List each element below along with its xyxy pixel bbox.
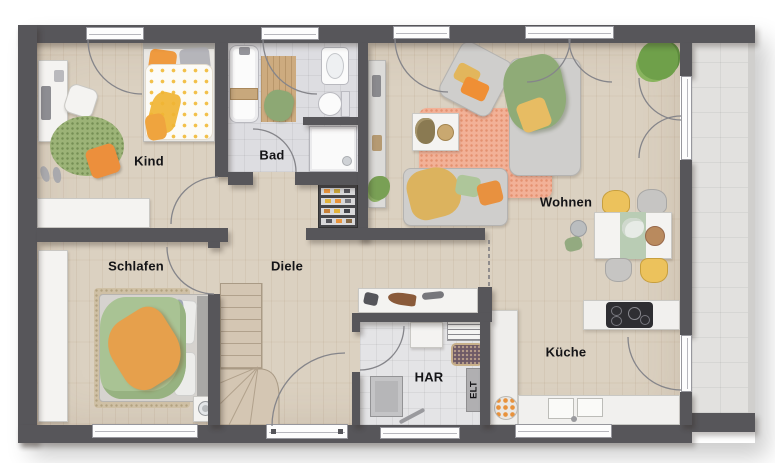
wall-bad-divider	[303, 117, 358, 125]
shoe-rack	[318, 184, 358, 228]
dining-chair-gray-2	[605, 258, 632, 282]
wall-har-left-top	[352, 322, 360, 332]
window-bad	[261, 27, 319, 40]
wall-right-middle	[680, 160, 692, 335]
shoe	[326, 219, 332, 223]
room-label-har: HAR	[415, 370, 444, 385]
entry-door	[266, 424, 348, 439]
monitor-icon	[41, 86, 51, 120]
laundry-basket	[451, 343, 483, 366]
shower-drain-icon	[342, 156, 352, 166]
shoe	[336, 219, 342, 223]
terrace-edge	[748, 43, 755, 413]
room-label-elt: ELT	[469, 381, 480, 399]
shoe	[335, 199, 341, 203]
room-label-kueche: Küche	[546, 345, 587, 360]
exterior-wall-left	[18, 25, 37, 443]
wall-schlafen-stairs	[208, 294, 220, 425]
burner-icon	[611, 306, 622, 316]
shoe	[344, 189, 350, 193]
sink-faucet-icon	[571, 416, 577, 422]
wall-diele-wohnen	[306, 228, 485, 240]
dining-chair-gray-1	[637, 189, 667, 214]
table-plate	[645, 226, 665, 246]
bathtub-faucet-icon	[239, 47, 250, 55]
room-label-bad: Bad	[259, 148, 284, 163]
shoe-shelf	[321, 218, 355, 225]
wall-har-left-bottom	[352, 372, 360, 425]
utensil-icon	[363, 292, 379, 307]
terrace-floor	[692, 43, 748, 413]
wall-bad-bottom-right	[295, 172, 358, 185]
room-label-wohnen: Wohnen	[540, 195, 592, 210]
window-living-1	[393, 26, 450, 39]
cooktop	[606, 302, 653, 328]
dining-chair-yellow-2	[640, 258, 668, 283]
room-label-diele: Diele	[271, 259, 303, 274]
terrace-kitchen-door	[681, 335, 692, 392]
bathtub-tray	[230, 88, 258, 100]
terrace-wall-bottom	[692, 413, 755, 432]
shoe-shelf	[321, 188, 355, 195]
window-living-2	[525, 26, 614, 39]
shoe-shelf	[321, 208, 355, 215]
shoe-shelf	[321, 198, 355, 205]
shoe	[344, 209, 350, 213]
wall-kind-bad	[215, 43, 228, 177]
stairs-straight-flight	[220, 283, 262, 369]
utility-box	[410, 322, 443, 348]
wall-right-bottom	[680, 392, 692, 425]
window-har	[380, 427, 460, 439]
fruit-bowl	[494, 396, 518, 420]
shoe	[345, 199, 351, 203]
coffee-table-tray	[437, 124, 454, 141]
shoe	[324, 189, 330, 193]
wall-schlafen-stairs-top	[208, 242, 220, 248]
washing-machine	[370, 376, 403, 417]
sink-basin	[326, 53, 344, 79]
wall-har-top	[352, 313, 492, 322]
window-kueche	[515, 424, 612, 438]
shoe	[334, 209, 340, 213]
kids-wardrobe	[37, 198, 150, 228]
dining-chair-yellow-1	[602, 190, 630, 214]
wall-right-top	[680, 43, 692, 76]
floor-plan: Kind Bad Wohnen Schlafen Diele HAR ELT K…	[0, 0, 775, 463]
burner-icon	[628, 307, 641, 320]
coffee-table-plant-icon	[415, 118, 435, 144]
sink-basin-1	[548, 398, 574, 419]
room-label-schlafen: Schlafen	[108, 259, 164, 274]
bathtub	[229, 45, 259, 123]
entry-door-handle-icon	[338, 429, 343, 434]
sink-basin-2	[577, 398, 603, 417]
shoe	[325, 199, 331, 203]
room-label-kind: Kind	[134, 154, 164, 169]
entry-door-hinge-icon	[271, 429, 276, 434]
shoe	[324, 209, 330, 213]
terrace-french-door	[681, 76, 692, 160]
wall-stub-kueche	[478, 287, 492, 313]
window-schlafen	[92, 424, 198, 438]
sideboard-books	[372, 135, 382, 151]
desk-item	[54, 70, 64, 82]
shoe	[346, 219, 352, 223]
shoe	[334, 189, 340, 193]
table-plate-left	[570, 220, 587, 237]
burner-icon	[611, 316, 622, 326]
wall-bad-wohnen	[358, 43, 368, 240]
wall-kind-schlafen	[37, 228, 228, 242]
toilet-bowl	[318, 92, 342, 116]
wall-bad-bottom-left	[228, 172, 253, 185]
burner-icon	[640, 315, 650, 325]
bedroom-wardrobe	[38, 250, 68, 422]
window-kind	[86, 27, 144, 40]
wall-har-right	[480, 322, 490, 425]
corner-plant-icon	[638, 40, 678, 80]
sideboard-decor	[372, 75, 381, 97]
toilet-tank	[341, 91, 350, 117]
